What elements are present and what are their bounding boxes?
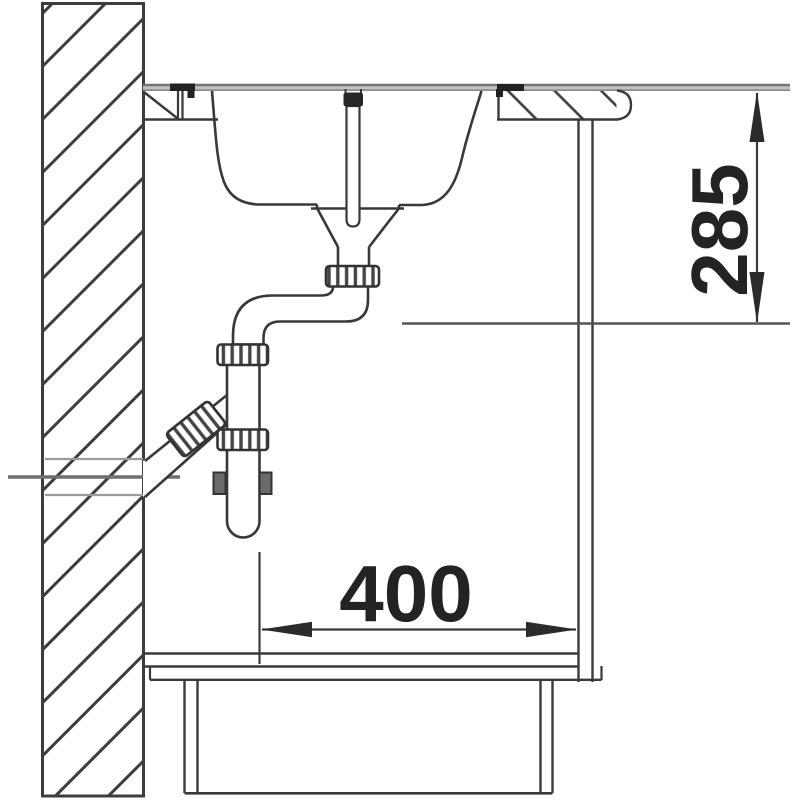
union-nut-trap-cup bbox=[218, 430, 269, 451]
base-cabinet bbox=[144, 121, 602, 794]
trap-tab-left bbox=[214, 473, 226, 495]
standpipe-cap bbox=[344, 93, 364, 107]
worktop-front-edge bbox=[617, 91, 631, 120]
sink-bowl bbox=[170, 84, 524, 267]
overflow-standpipe bbox=[344, 89, 364, 227]
dimension-400: 400 bbox=[260, 549, 578, 664]
sink-installation-diagram: 285 400 bbox=[0, 0, 800, 800]
s-bend-pipe bbox=[233, 287, 368, 345]
dimension-285: 285 bbox=[402, 92, 790, 324]
dim-400-label: 400 bbox=[339, 549, 472, 638]
worktop-block-left bbox=[143, 90, 218, 120]
dim-285-label: 285 bbox=[675, 163, 764, 296]
diagram-canvas: 285 400 bbox=[0, 0, 800, 800]
worktop-block-front bbox=[497, 91, 631, 120]
trap-cup bbox=[227, 450, 260, 538]
arrow-left-icon bbox=[261, 622, 312, 637]
arrow-right-icon bbox=[526, 622, 577, 637]
arrow-up-icon bbox=[750, 92, 765, 143]
trap-tab-right bbox=[260, 473, 272, 495]
worktop bbox=[143, 84, 790, 120]
union-nut-trap-top bbox=[218, 345, 269, 366]
drain-trap-assembly bbox=[143, 266, 379, 538]
plinth bbox=[150, 667, 602, 794]
union-nut-funnel bbox=[326, 266, 379, 287]
wall-section bbox=[43, 4, 144, 797]
